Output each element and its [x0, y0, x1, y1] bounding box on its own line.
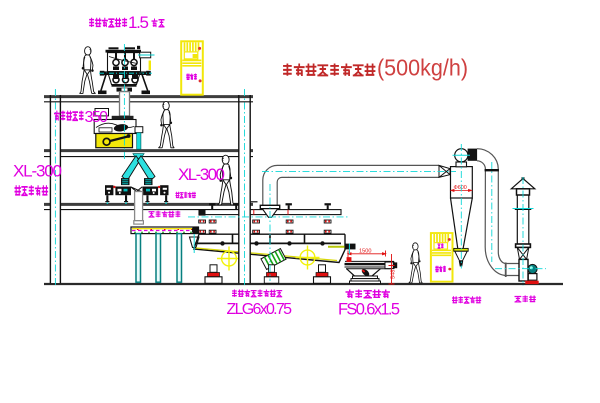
svg-text:(500kg/h): (500kg/h): [377, 55, 468, 81]
svg-text:ZLG6x0.75: ZLG6x0.75: [227, 301, 293, 318]
svg-text:350: 350: [85, 109, 109, 126]
svg-text:XL-300: XL-300: [13, 162, 62, 181]
svg-text:FS0.6x1.5: FS0.6x1.5: [338, 301, 400, 319]
svg-text:548: 548: [391, 270, 397, 279]
svg-text:1.5: 1.5: [128, 13, 149, 32]
svg-text:XL-300: XL-300: [178, 165, 225, 184]
svg-text:1500: 1500: [359, 249, 371, 255]
